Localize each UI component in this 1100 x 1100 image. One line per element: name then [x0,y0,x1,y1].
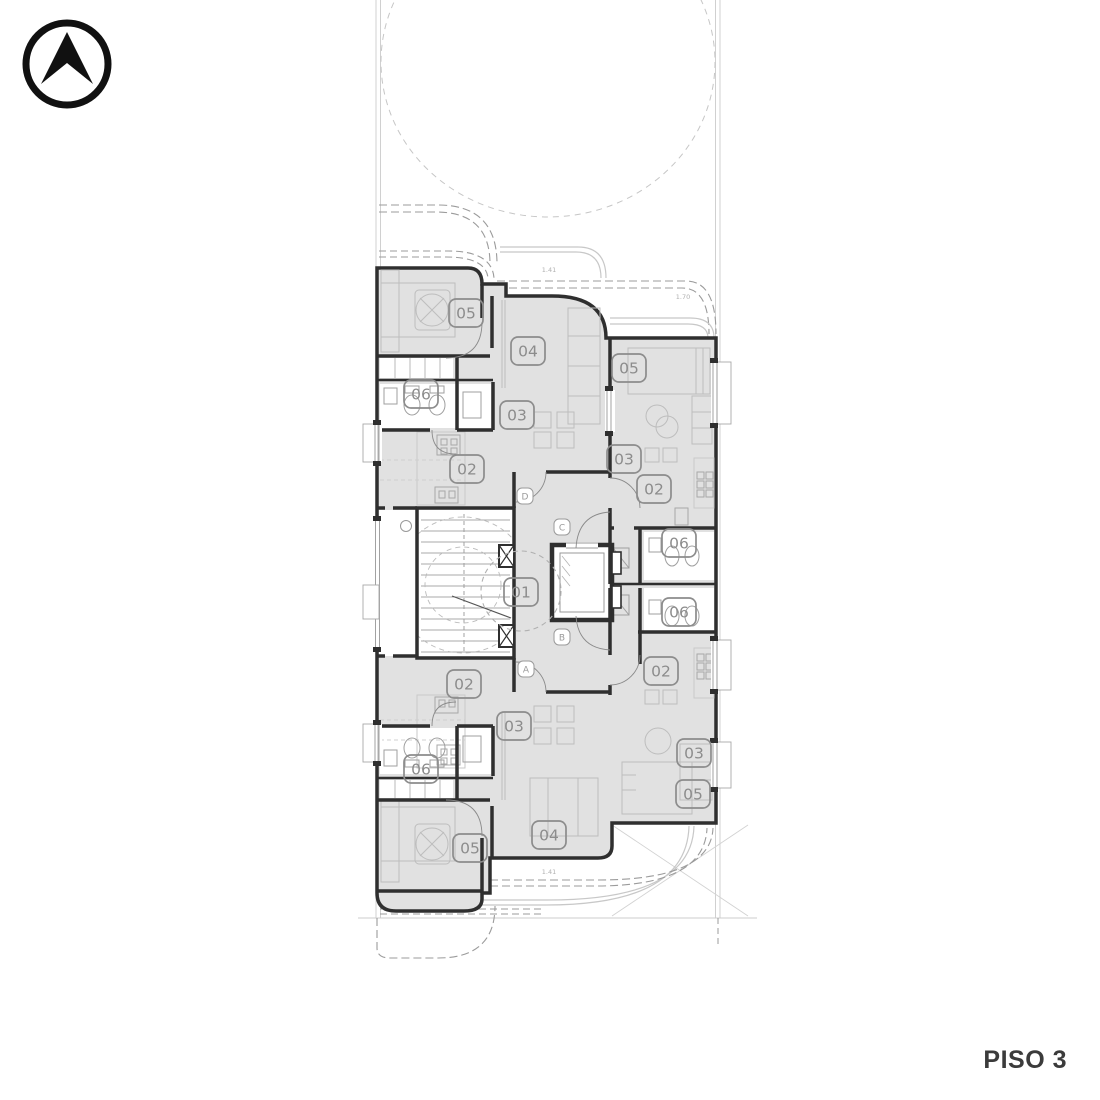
room-badge-label: 06 [669,604,689,622]
room-badge-label: 03 [614,451,634,469]
dimension-label: 1.70 [676,293,690,301]
room-badge-label: 05 [456,305,476,323]
room-badge-label: 04 [539,827,559,845]
room-badge-label: 05 [619,360,639,378]
floor-plan-page: 05040603020503020601060202030603050405 D… [0,0,1100,1100]
window-left-bath-a [363,420,382,466]
room-badge-label: 06 [411,761,431,779]
window-right-b [710,358,731,428]
door-tag: B [554,629,570,645]
north-arrow-icon [26,23,108,105]
door-tag-label: C [559,524,565,534]
room-badge-label: 03 [504,718,524,736]
dimension-label: 1.41 [542,868,556,876]
dimension-label: 1.41 [542,266,556,274]
room-badge-label: 03 [684,745,704,763]
window-party-wall [605,386,615,436]
room-badge-label: 06 [411,386,431,404]
floor-title: PISO 3 [983,1046,1067,1075]
tree-canopy-dashed-circle [381,0,715,217]
door-tag: D [517,488,533,504]
room-badge-label: 04 [518,343,538,361]
window-right-d2 [710,738,731,792]
room-badge-label: 03 [507,407,527,425]
door-tag: C [554,519,570,535]
door-tag-label: D [522,493,529,503]
room-badge-label: 02 [651,663,671,681]
room-badge-label: 02 [457,461,477,479]
window-left-bath-c [363,720,382,766]
room-badge-label: 02 [454,676,474,694]
window-left-stair [363,516,382,652]
floor-plan-drawing: 05040603020503020601060202030603050405 D… [0,0,1100,1100]
room-badge-label: 01 [511,584,531,602]
window-right-d1 [710,636,731,694]
room-badge-label: 02 [644,481,664,499]
door-tag-label: A [523,666,530,676]
room-badge-label: 05 [460,840,480,858]
door-tag: A [518,661,534,677]
room-badge-label: 05 [683,786,703,804]
room-badge-label: 06 [669,535,689,553]
door-tag-label: B [559,634,565,644]
